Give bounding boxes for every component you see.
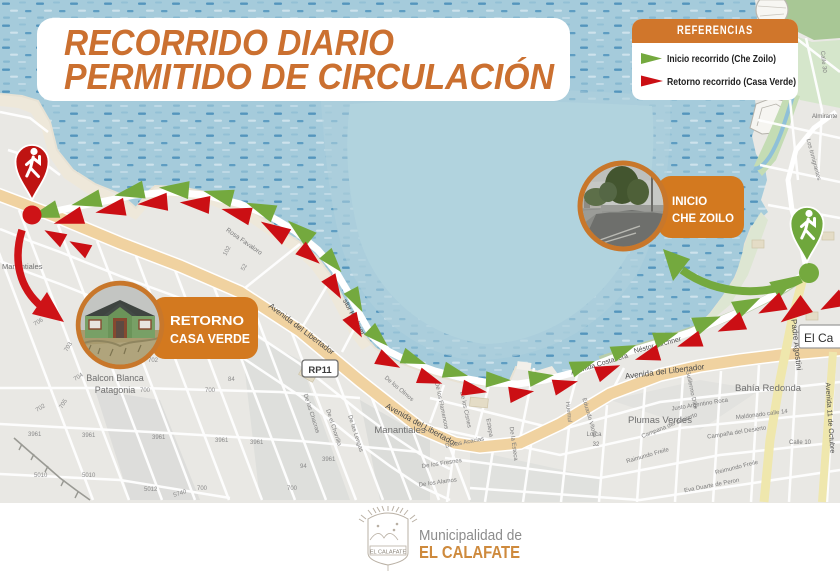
svg-text:REFERENCIAS: REFERENCIAS — [677, 25, 753, 37]
svg-text:Inicio recorrido (Che Zoilo): Inicio recorrido (Che Zoilo) — [667, 54, 776, 65]
svg-text:EL CALAFATE: EL CALAFATE — [419, 542, 520, 562]
svg-text:700: 700 — [287, 486, 298, 492]
svg-text:5012: 5012 — [144, 487, 158, 493]
svg-text:84: 84 — [228, 377, 235, 383]
svg-text:94: 94 — [300, 464, 307, 470]
svg-text:3961: 3961 — [152, 435, 166, 441]
svg-text:RETORNO: RETORNO — [170, 314, 244, 328]
svg-text:Lorca: Lorca — [586, 432, 602, 438]
svg-text:700: 700 — [205, 388, 216, 394]
svg-text:Bahía Redonda: Bahía Redonda — [735, 383, 802, 394]
svg-text:3961: 3961 — [250, 440, 264, 446]
svg-text:Retorno recorrido (Casa Verde): Retorno recorrido (Casa Verde) — [667, 77, 796, 88]
svg-text:5010: 5010 — [82, 473, 96, 479]
svg-text:3961: 3961 — [215, 438, 229, 444]
svg-text:700: 700 — [140, 388, 151, 394]
svg-text:Balcon Blanca: Balcon Blanca — [86, 373, 144, 383]
svg-text:El Ca: El Ca — [804, 331, 834, 345]
svg-text:702: 702 — [148, 358, 159, 364]
svg-text:CASA VERDE: CASA VERDE — [170, 332, 250, 346]
svg-text:32: 32 — [593, 442, 600, 448]
svg-text:3961: 3961 — [82, 433, 96, 439]
svg-text:Calle 10: Calle 10 — [789, 440, 812, 446]
svg-text:3961: 3961 — [28, 432, 42, 438]
svg-text:RP11: RP11 — [308, 365, 332, 376]
svg-text:CHE ZOILO: CHE ZOILO — [672, 213, 734, 225]
svg-text:700: 700 — [197, 486, 208, 492]
svg-text:INICIO: INICIO — [672, 196, 707, 208]
svg-text:Almirante: Almirante — [812, 114, 838, 120]
svg-text:5010: 5010 — [34, 473, 48, 479]
svg-text:PERMITIDO DE CIRCULACIÓN: PERMITIDO DE CIRCULACIÓN — [64, 56, 555, 97]
svg-text:EL CALAFATE: EL CALAFATE — [370, 550, 407, 556]
svg-text:Patagonia: Patagonia — [95, 385, 136, 395]
svg-text:3961: 3961 — [322, 457, 336, 463]
